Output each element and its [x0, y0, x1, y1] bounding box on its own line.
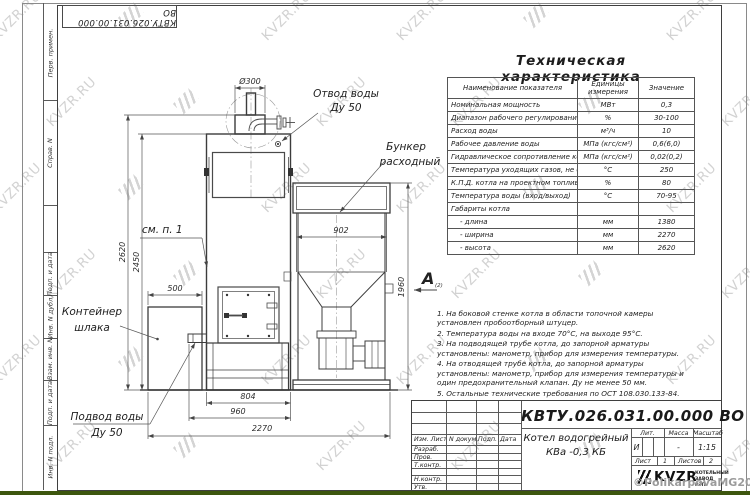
- label-water-outlet-1: Отвод воды: [313, 88, 379, 100]
- rotated-doc-number-text: КВТУ.026.031.00.000 ВО: [63, 7, 176, 27]
- tb-sheets-value: 2: [709, 458, 713, 465]
- chimney-elbow-and-outlet-pipe: [249, 116, 295, 147]
- tb-lit-header: Лит.: [631, 430, 664, 437]
- note-2: 2. Температура воды на входе 70°С, на вы…: [437, 329, 693, 338]
- tb-sheet-value: 1: [663, 458, 667, 465]
- table-row: Рабочее давление водыМПа (кгс/см²)0,6(6,…: [448, 138, 695, 151]
- boiler-ash-box: [207, 343, 289, 390]
- tb-product-name-2: КВа -0,3 КБ: [521, 447, 631, 458]
- side-field-sprav-n: Справ. N: [43, 100, 57, 206]
- boiler-body: [207, 93, 291, 390]
- dim-2620: 2620: [118, 242, 127, 262]
- table-row: - длинамм1380: [448, 216, 695, 229]
- dim-804: 804: [240, 392, 255, 401]
- side-field-podp-data-1: Подп. и дата: [43, 252, 57, 296]
- dim-d300: Ø300: [238, 76, 261, 86]
- note-1: 1. На боковой стенке котла в области топ…: [437, 309, 693, 328]
- label-hopper-2: расходный: [379, 156, 441, 168]
- tb-col-podp: Подп.: [478, 436, 497, 443]
- screw-feeder: [319, 338, 385, 369]
- side-field-podp-data-2: Подп. и дата: [43, 380, 57, 426]
- tb-lit-value: И: [631, 443, 642, 452]
- tb-col-data: Дата: [500, 436, 516, 443]
- tb-sheets-label: Листов: [678, 458, 702, 465]
- tb-mass-header: Масса: [664, 430, 693, 437]
- table-row: Гидравлическое сопротивление котлаМПа (к…: [448, 151, 695, 164]
- dim-500: 500: [167, 284, 182, 293]
- table-row: Номинальная мощностьМВт0,3: [448, 99, 695, 112]
- tb-row-utv: Утв.: [414, 484, 427, 491]
- slag-container: [148, 307, 202, 390]
- dim-960: 960: [230, 407, 245, 416]
- dim-902: 902: [333, 226, 348, 235]
- tb-sheet-label: Лист: [635, 458, 651, 465]
- label-water-inlet-1: Подвод воды: [71, 411, 144, 423]
- boiler-upper-panel: [204, 153, 293, 198]
- table-row: К.П.Д. котла на проектном топливе%80: [448, 177, 695, 190]
- table-row: Габариты котла: [448, 203, 695, 216]
- tech-characteristics-table: Наименование показателя Единицы измерени…: [447, 77, 695, 255]
- tb-scale-header: Масштаб: [693, 430, 721, 437]
- note-4: 4. На отводящей трубе котла, до запорной…: [437, 359, 693, 387]
- view-a-sheet-ref: (2): [435, 283, 443, 289]
- table-row: Температура уходящих газов, не более°С25…: [448, 164, 695, 177]
- tb-scale-value: 1:15: [693, 443, 721, 452]
- boiler-furnace-door: [218, 287, 279, 343]
- table-header-row: Наименование показателя Единицы измерени…: [448, 78, 695, 99]
- water-inlet-fitting: [188, 334, 207, 343]
- table-row: - ширинамм2270: [448, 229, 695, 242]
- side-field-vzam-inv: Взам. инв. N: [43, 338, 57, 381]
- dim-1960: 1960: [397, 277, 406, 297]
- callout-labels: Отвод воды Ду 50 Бункер расходный см. п.…: [62, 88, 443, 439]
- dim-2450: 2450: [132, 252, 141, 272]
- table-row: Температура воды (вход/выход)°С70-95: [448, 190, 695, 203]
- technical-notes: 1. На боковой стенке котла в области топ…: [437, 309, 693, 399]
- label-hopper-1: Бункер: [386, 141, 426, 153]
- label-water-inlet-2: Ду 50: [90, 427, 122, 439]
- tb-mass-value: -: [664, 443, 693, 452]
- side-field-inv-podl: Инв. N подл.: [43, 425, 57, 489]
- label-see-note-1: см. п. 1: [142, 224, 183, 236]
- view-a-letter: A: [420, 269, 434, 288]
- note-5: 5. Остальные технические требования по О…: [437, 389, 693, 398]
- tb-product-name-1: Котел водогрейный: [521, 433, 631, 444]
- label-slag-container-1: Контейнер: [62, 306, 122, 318]
- tb-row-nkontr: Н.контр.: [414, 476, 442, 483]
- dim-2270: 2270: [252, 424, 272, 433]
- tb-col-izm-list: Изм. Лист: [414, 436, 447, 443]
- label-slag-container-2: шлака: [74, 322, 110, 334]
- label-water-outlet-2: Ду 50: [329, 102, 361, 114]
- side-field-perv-primen: Перв. примен.: [43, 5, 57, 101]
- side-field-inv-dubl: Инв. N дубл.: [43, 295, 57, 339]
- centerlines: [226, 88, 337, 378]
- dimension-lines: [124, 85, 412, 439]
- table-row: Расход водым³/ч10: [448, 125, 695, 138]
- note-3: 3. На подводящей трубе котла, до запорно…: [437, 339, 693, 358]
- bottom-green-bar: [0, 491, 750, 495]
- tb-row-razrab: Разраб.: [414, 446, 439, 453]
- rotated-doc-number-stamp: КВТУ.026.031.00.000 ВО: [62, 5, 177, 28]
- table-row: Диапазон рабочего регулирования%30-100: [448, 112, 695, 125]
- tb-col-n-dokum: N докум.: [449, 436, 478, 443]
- tb-doc-number: КВТУ.026.031.00.000 ВО: [521, 407, 721, 425]
- copyright-watermark: ©PolikarpovaMG2021: [633, 476, 750, 489]
- side-field-empty: [43, 205, 57, 253]
- table-row: - высотамм2620: [448, 242, 695, 255]
